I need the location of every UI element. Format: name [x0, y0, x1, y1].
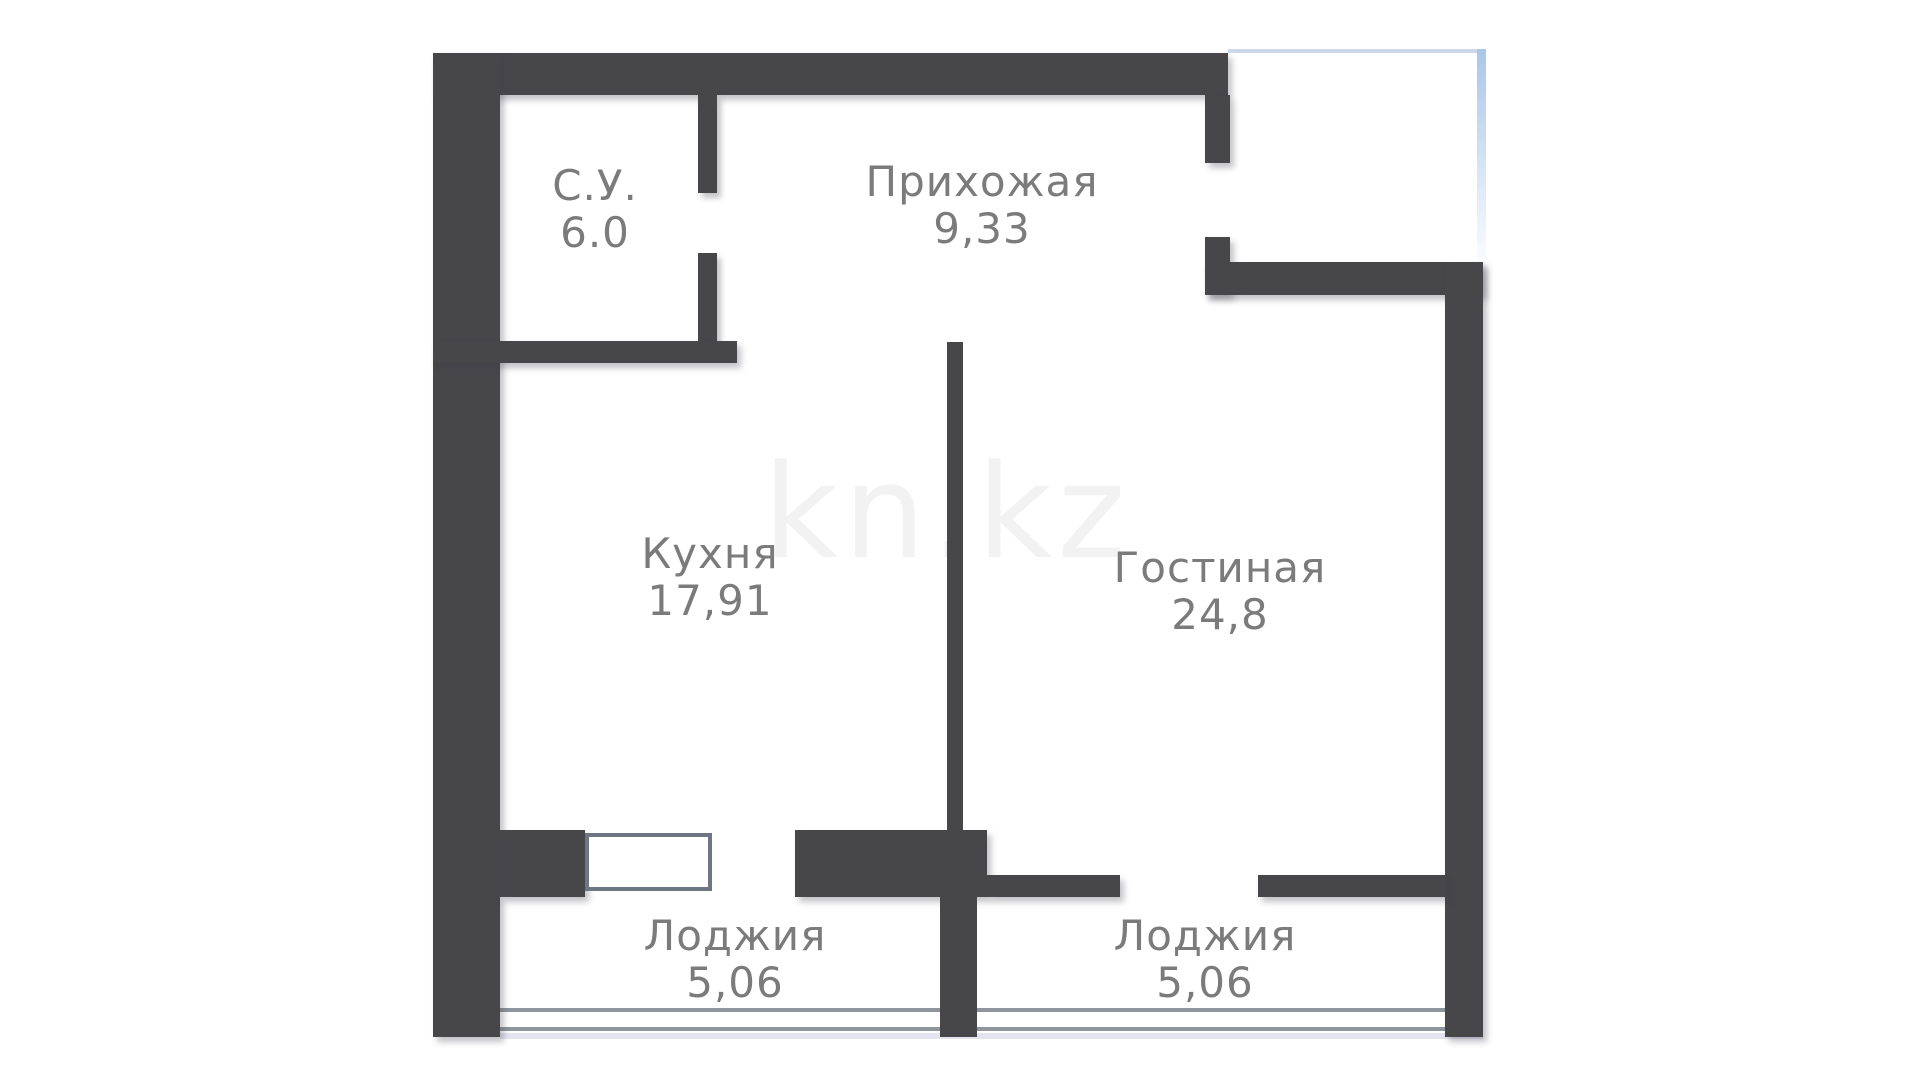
image-edge-bottom-tint [500, 1033, 1483, 1039]
room-area: 5,06 [1114, 959, 1297, 1006]
wall-bathroom-right-upper [698, 95, 717, 193]
wall-living-bottom-right [1258, 875, 1445, 897]
room-name: Прихожая [866, 157, 1099, 206]
floor-plan: kn.kz С.У. 6.0 Прихожая 9,33 Кухня 17,91… [0, 0, 1920, 1080]
wall-bathroom-bottom [433, 341, 737, 363]
wall-bathroom-right-lower [698, 253, 717, 341]
room-area: 5,06 [644, 959, 827, 1006]
room-area: 9,33 [866, 205, 1099, 252]
image-edge-right-line [1477, 49, 1486, 274]
room-label-loggia-living: Лоджия 5,06 [1114, 912, 1297, 1006]
wall-kitchen-living-divider [947, 342, 963, 830]
room-name: Лоджия [1114, 911, 1297, 960]
wall-living-bottom-left [987, 875, 1120, 897]
room-area: 6.0 [552, 209, 638, 256]
room-area: 24,8 [1114, 591, 1327, 638]
wall-right-exterior [1445, 262, 1483, 1037]
room-label-bathroom: С.У. 6.0 [552, 162, 638, 256]
wall-hallway-right-horizontal [1205, 262, 1483, 295]
room-name: Гостиная [1114, 543, 1327, 592]
wall-kitchen-bottom-left [500, 830, 585, 897]
room-name: С.У. [552, 161, 638, 210]
wall-loggia-divider [940, 897, 977, 1037]
room-label-hallway: Прихожая 9,33 [866, 158, 1099, 252]
room-name: Кухня [641, 529, 778, 578]
wall-kitchen-bottom-block [795, 830, 987, 897]
wall-left-exterior [433, 53, 500, 1037]
room-label-living-room: Гостиная 24,8 [1114, 544, 1327, 638]
room-name: Лоджия [644, 911, 827, 960]
room-label-kitchen: Кухня 17,91 [641, 530, 778, 624]
kitchen-window [585, 833, 712, 891]
wall-entry-upper [1205, 95, 1230, 163]
room-label-loggia-kitchen: Лоджия 5,06 [644, 912, 827, 1006]
image-edge-top-line [1228, 49, 1486, 53]
room-area: 17,91 [641, 577, 778, 624]
wall-top-exterior [433, 53, 1228, 95]
